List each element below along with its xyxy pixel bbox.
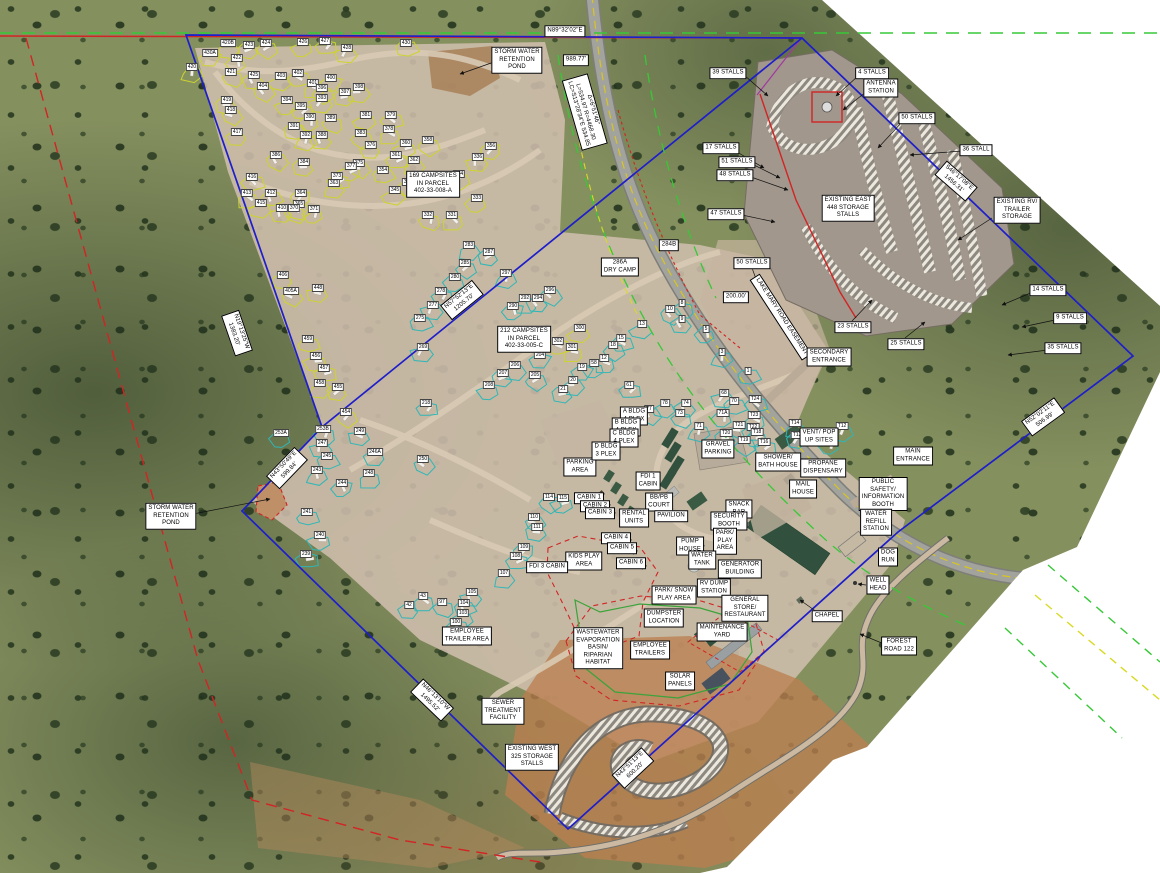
distance-200: 200.00': [723, 291, 749, 303]
site-number-chip: 97: [437, 598, 447, 606]
site-number-chip: 13: [637, 320, 647, 328]
site-number-chip: 395: [295, 102, 307, 110]
site-number-chip: 300: [574, 324, 586, 332]
vent-popup-sites: VENT/ POP UP SITES: [800, 428, 839, 447]
site-number-chip: 114: [543, 493, 555, 501]
site-number-chip: 245: [321, 452, 333, 460]
bearing-northeast-line: S46°17'08"E 1456.31': [934, 160, 977, 201]
bearing-southeast-line: N43°51'13"E 600.20': [611, 747, 654, 789]
site-number-chip: 402: [292, 69, 304, 77]
site-number-chip: 363: [328, 179, 340, 187]
site-number-chip: 430A: [202, 49, 218, 57]
site-number-chip: 253A: [273, 429, 289, 437]
west-storage-label: EXISTING WEST 325 STORAGE STALLS: [505, 744, 559, 771]
site-number-chip: 107: [498, 569, 510, 577]
site-number-chip: 448: [312, 284, 324, 292]
stalls-4: 4 STALLS: [855, 67, 889, 79]
site-number-chip: 455: [332, 383, 344, 391]
cabin-5: CABIN 5: [607, 542, 637, 554]
site-number-chip: T20: [720, 429, 733, 437]
site-number-chip: 358: [422, 136, 434, 144]
road-curve-data: Δ=6°51'46" L=534.97 R=4468.30 LC=S13°28'…: [562, 73, 608, 150]
site-number-chip: 403: [275, 72, 287, 80]
site-number-chip: 388: [316, 131, 328, 139]
site-number-chip: 362: [408, 156, 420, 164]
site-number-chip: 418: [225, 106, 237, 114]
site-number-chip: 43: [418, 592, 428, 600]
site-number-chip: 457: [318, 364, 330, 372]
lake-mary-road-easement: LAKE MARY ROAD EASEMENT: [750, 274, 812, 361]
site-number-chip: 421: [225, 68, 237, 76]
site-number-chip: 208: [483, 381, 495, 389]
site-number-chip: 379: [385, 111, 397, 119]
fdi-3-cabin: FDI 3 CABIN: [526, 561, 568, 573]
site-number-chip: 356: [485, 142, 497, 150]
parcel-212-campsites: 212 CAMPSITES IN PARCEL 402-33-005-C: [497, 326, 551, 353]
site-number-chip: 333: [471, 194, 483, 202]
site-number-chip: T14: [789, 419, 802, 427]
site-number-chip: 360: [400, 139, 412, 147]
site-number-chip: 331: [446, 211, 458, 219]
distance-north-line: 989.77': [563, 54, 589, 66]
site-number-chip: 109: [518, 543, 530, 551]
site-284b: 284B: [659, 239, 679, 251]
chapel: CHAPEL: [812, 610, 843, 622]
site-number-chip: 74: [681, 399, 691, 407]
site-number-chip: 275: [414, 314, 426, 322]
site-number-chip: 280: [449, 273, 461, 281]
park-play-area: PARK/ PLAY AREA: [713, 528, 737, 555]
site-number-chip: 71: [694, 422, 704, 430]
propane-dispensary: PROPANE DISPENSARY: [800, 459, 846, 478]
site-number-chip: 21: [558, 385, 568, 393]
site-number-chip: 354: [377, 166, 389, 174]
site-number-chip: 371: [308, 205, 320, 213]
site-number-chip: 205: [529, 371, 541, 379]
site-number-chip: T24: [749, 395, 762, 403]
site-number-chip: 287: [483, 248, 495, 256]
site-number-chip: 392: [300, 131, 312, 139]
employee-trailers: EMPLOYEE TRAILERS: [630, 641, 670, 660]
stalls-9: 9 STALLS: [1053, 312, 1087, 324]
water-tank: WATER TANK: [688, 551, 716, 570]
rental-units: RENTAL UNITS: [619, 509, 649, 528]
site-number-chip: 389: [325, 114, 337, 122]
site-number-chip: 426: [297, 38, 309, 46]
dry-camp-label: 286A DRY CAMP: [601, 258, 639, 277]
site-number-chip: 459: [302, 335, 314, 343]
site-number-chip: 296: [544, 286, 556, 294]
d-bldg-3plex: D BLDG 3 PLEX: [592, 442, 621, 461]
site-number-chip: 394: [281, 96, 293, 104]
site-number-chip: T19: [738, 436, 751, 444]
site-number-chip: 241: [301, 508, 313, 516]
site-number-chip: 378: [383, 125, 395, 133]
site-number-chip: 415: [255, 199, 267, 207]
well-head: WELL HEAD: [866, 576, 889, 595]
stalls-17: 17 STALLS: [702, 142, 739, 154]
site-number-chip: 105: [466, 588, 478, 596]
kids-play-area: KIDS PLAY AREA: [565, 552, 602, 571]
maintenance-yard: MAINTENANCE YARD: [697, 623, 748, 642]
site-number-chip: 294: [532, 294, 544, 302]
site-number-chip: 278: [435, 287, 447, 295]
site-number-chip: 393: [316, 94, 328, 102]
site-number-chip: 249: [354, 427, 366, 435]
antenna-station-label: ANTENNA STATION: [863, 79, 898, 98]
stalls-48: 48 STALLS: [716, 169, 753, 181]
site-number-chip: 427: [319, 37, 331, 45]
bearing-interior-line: N57°52'13"E 1205.70': [440, 280, 484, 321]
wastewater-basin: WASTEWATER EVAPORATION BASIN/ RIPARIAN H…: [573, 627, 623, 669]
site-number-chip: 250: [417, 455, 429, 463]
site-number-chip: 345: [389, 186, 401, 194]
site-number-chip: 8: [679, 299, 686, 307]
site-number-chip: 391: [288, 122, 300, 130]
site-number-chip: 218: [420, 399, 432, 407]
site-number-chip: 42: [404, 601, 414, 609]
stalls-14: 14 STALLS: [1029, 284, 1066, 296]
gravel-parking: GRAVEL PARKING: [701, 440, 734, 459]
site-number-chip: 9: [679, 315, 686, 323]
site-number-chip: 454: [340, 408, 352, 416]
site-number-chip: 406: [277, 271, 289, 279]
site-number-chip: 297: [500, 269, 512, 277]
site-number-chip: T23: [748, 411, 761, 419]
bearing-east-line: N52°02'11"E 506.99': [1021, 397, 1065, 436]
site-number-chip: 419: [221, 96, 233, 104]
mail-house: MAIL HOUSE: [789, 480, 817, 499]
site-number-chip: 413: [241, 189, 253, 197]
site-number-chip: 1: [745, 367, 752, 375]
stalls-50-lower: 50 STALLS: [733, 257, 770, 269]
site-number-chip: 423: [243, 41, 255, 49]
site-number-chip: 115: [557, 494, 569, 502]
stalls-47: 47 STALLS: [707, 208, 744, 220]
site-number-chip: 253B: [315, 425, 331, 433]
site-number-chip: 397: [339, 88, 351, 96]
forest-road-122: FOREST ROAD 122: [881, 637, 917, 656]
site-number-chip: 248: [363, 469, 375, 477]
site-number-chip: 420: [186, 63, 198, 71]
site-number-chip: 422: [231, 54, 243, 62]
site-number-chip: T18: [751, 428, 764, 436]
label-layer: N89°32'02"E989.77'STORM WATER RETENTION …: [0, 0, 1160, 873]
fdi-1-cabin: FDI 1 CABIN: [636, 472, 661, 491]
site-number-chip: 376: [365, 141, 377, 149]
site-number-chip: 70: [729, 397, 739, 405]
site-number-chip: 404: [257, 82, 269, 90]
site-number-chip: 10: [665, 305, 675, 313]
site-number-chip: 283: [463, 241, 475, 249]
bearing-southwest-short: N43°50'49"E 599.84': [266, 447, 308, 490]
cabin-3: CABIN 3: [585, 507, 615, 519]
shower-bath-house: SHOWER/ BATH HOUSE: [755, 453, 801, 472]
site-number-chip: 398: [353, 83, 365, 91]
general-store-restaurant: GENERAL STORE/ RESTAURANT: [721, 595, 768, 622]
storm-pond-west-label: STORM WATER RETENTION POND: [145, 503, 196, 530]
stalls-51: 51 STALLS: [718, 156, 755, 168]
site-number-chip: 246A: [367, 448, 383, 456]
site-number-chip: 361: [390, 151, 402, 159]
site-plan-map: N89°32'02"E989.77'STORM WATER RETENTION …: [0, 0, 1160, 873]
bearing-north-line: N89°32'02"E: [544, 25, 585, 37]
stalls-25: 25 STALLS: [887, 338, 924, 350]
site-number-chip: 410: [276, 204, 288, 212]
site-number-chip: 400: [325, 74, 337, 82]
site-number-chip: 239: [300, 550, 312, 558]
site-number-chip: 206: [509, 361, 521, 369]
site-number-chip: 243: [311, 466, 323, 474]
site-number-chip: 420B: [220, 39, 236, 47]
cabin-6: CABIN 6: [616, 557, 646, 569]
employee-trailer-area: EMPLOYEE TRAILER AREA: [442, 627, 492, 646]
rv-trailer-storage-label: EXISTING RV/ TRAILER STORAGE: [994, 197, 1041, 224]
main-entrance-label: MAIN ENTRANCE: [893, 447, 933, 466]
dumpster-location: DUMPSTER LOCATION: [644, 609, 684, 628]
site-number-chip: 5: [703, 325, 710, 333]
site-number-chip: 430: [400, 39, 412, 47]
site-number-chip: 61: [624, 381, 634, 389]
pavilion: PAVILION: [654, 510, 688, 522]
site-number-chip: 12: [599, 354, 609, 362]
site-number-chip: 78: [660, 399, 670, 407]
dog-run: DOG RUN: [878, 548, 898, 567]
site-number-chip: 292: [519, 294, 531, 302]
site-number-chip: 396: [316, 84, 328, 92]
site-number-chip: 370: [288, 204, 300, 212]
site-number-chip: 111: [531, 523, 543, 531]
site-number-chip: 377: [345, 162, 357, 170]
site-number-chip: 384: [298, 158, 310, 166]
site-number-chip: 58: [589, 359, 599, 367]
site-number-chip: 405A: [283, 287, 299, 295]
site-number-chip: 100: [450, 618, 462, 626]
site-number-chip: 68: [719, 389, 729, 397]
site-number-chip: T21: [733, 421, 746, 429]
stalls-35: 35 STALLS: [1044, 342, 1081, 354]
sewer-treatment-facility: SEWER TREATMENT FACILITY: [481, 698, 524, 725]
site-number-chip: 383: [355, 129, 367, 137]
bearing-west-line: N19°13'25"W 1383.20': [221, 310, 253, 357]
site-number-chip: 207: [497, 369, 509, 377]
site-number-chip: 456: [310, 352, 322, 360]
public-safety-booth: PUBLIC SAFETY/ INFORMATION BOOTH: [859, 477, 908, 511]
site-number-chip: 336: [472, 153, 484, 161]
site-number-chip: 381: [360, 111, 372, 119]
stalls-23: 23 STALLS: [834, 321, 871, 333]
site-number-chip: 458: [314, 379, 326, 387]
east-storage-label: EXISTING EAST 448 STORAGE STALLS: [822, 195, 875, 222]
site-number-chip: 301: [566, 343, 578, 351]
site-number-chip: 18: [608, 341, 618, 349]
site-number-chip: 332: [422, 211, 434, 219]
site-number-chip: 277: [427, 301, 439, 309]
park-snow-play-area: PARK/ SNOW PLAY AREA: [652, 586, 697, 605]
site-number-chip: 103: [457, 609, 469, 617]
site-number-chip: 73: [675, 409, 685, 417]
site-number-chip: 104: [458, 599, 470, 607]
stalls-50-upper: 50 STALLS: [898, 112, 935, 124]
site-number-chip: 20: [568, 376, 578, 384]
storm-pond-north-label: STORM WATER RETENTION POND: [491, 47, 542, 74]
site-number-chip: 417: [231, 128, 243, 136]
site-number-chip: 364: [295, 189, 307, 197]
site-number-chip: T16: [758, 438, 771, 446]
site-number-chip: 302: [552, 337, 564, 345]
site-number-chip: 428: [341, 44, 353, 52]
stalls-36: 36 STALL: [959, 144, 992, 156]
site-number-chip: 19: [577, 363, 587, 371]
site-number-chip: 386: [270, 151, 282, 159]
site-number-chip: 412: [265, 189, 277, 197]
site-number-chip: 240: [314, 531, 326, 539]
site-number-chip: 71A: [717, 409, 730, 417]
site-number-chip: 244: [336, 479, 348, 487]
stalls-39: 39 STALLS: [709, 67, 746, 79]
generator-building: GENERATOR BUILDING: [718, 560, 762, 579]
site-number-chip: 424: [260, 39, 272, 47]
site-number-chip: 110: [528, 513, 540, 521]
site-number-chip: 108: [510, 552, 522, 560]
site-number-chip: 416: [246, 173, 258, 181]
site-number-chip: 3: [719, 348, 726, 356]
secondary-entrance-label: SECONDARY ENTRANCE: [807, 348, 852, 367]
site-number-chip: 390: [304, 113, 316, 121]
bearing-south-line: N46°13'10"W 1495.52': [410, 678, 454, 721]
site-number-chip: 285: [459, 259, 471, 267]
parcel-169-campsites: 169 CAMPSITES IN PARCEL 402-33-008-A: [406, 171, 460, 198]
site-number-chip: 290: [507, 302, 519, 310]
site-number-chip: 269: [417, 343, 429, 351]
water-refill-station: WATER REFILL STATION: [860, 509, 892, 536]
site-number-chip: 247: [316, 439, 328, 447]
solar-panels: SOLAR PANELS: [665, 672, 695, 691]
bbpb-court: BB/PB COURT: [645, 493, 673, 512]
site-number-chip: 425: [248, 71, 260, 79]
